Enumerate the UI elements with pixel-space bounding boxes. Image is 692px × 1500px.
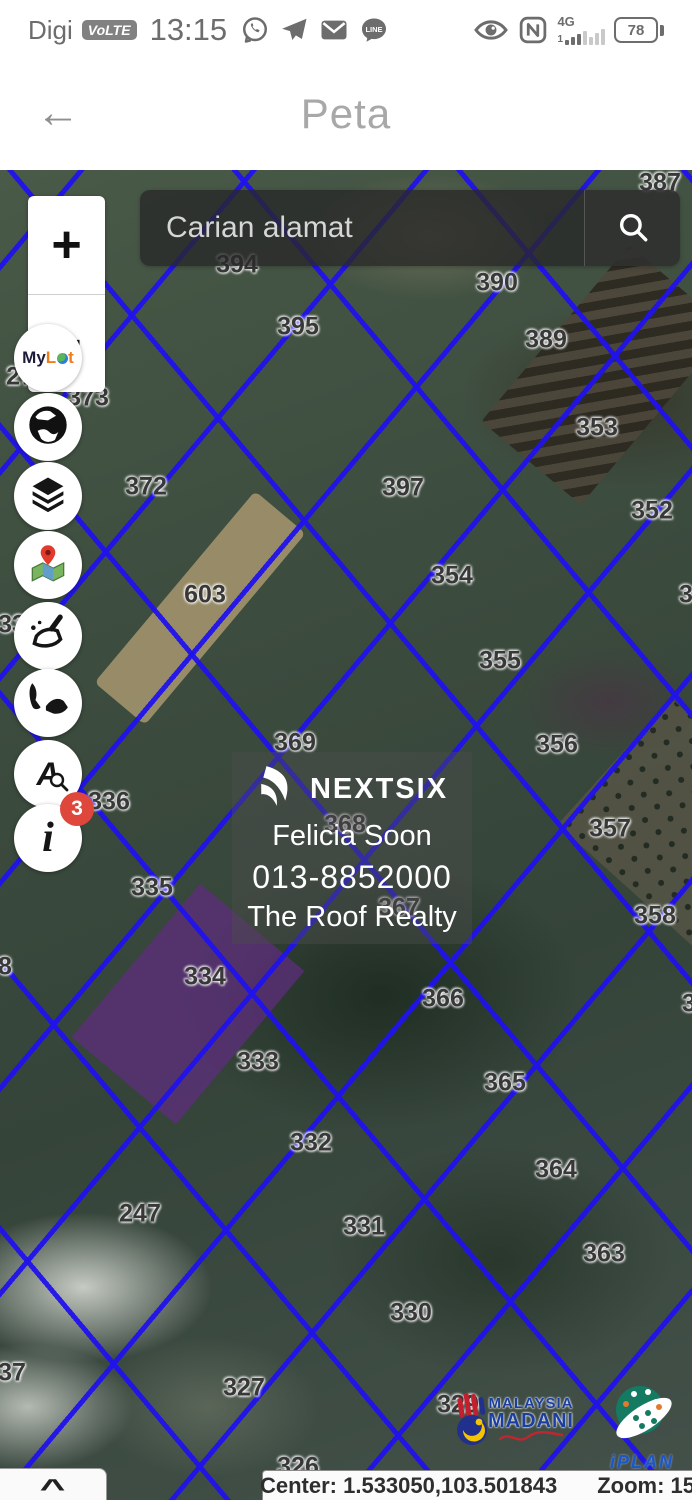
status-bar: Digi VoLTE 13:15 LINE 4G xyxy=(0,0,692,60)
center-coordinates: Center: 1.533050,103.501843 xyxy=(260,1473,557,1499)
nextsix-logo-icon xyxy=(256,764,302,815)
lot-label: 395 xyxy=(277,313,319,342)
layers-button[interactable] xyxy=(14,462,82,530)
carrier-label: Digi xyxy=(28,15,73,46)
lot-label: 331 xyxy=(343,1213,385,1242)
lot-label: 327 xyxy=(223,1374,265,1403)
zoom-in-button[interactable]: + xyxy=(28,196,105,295)
brand-row: NEXTSIX xyxy=(256,764,448,815)
madani-text: MALAYSIA MADANI xyxy=(488,1396,574,1447)
battery-icon: 78 xyxy=(614,17,664,43)
mail-icon xyxy=(318,15,350,45)
lot-label: 3 xyxy=(679,581,692,610)
agent-phone: 013-8852000 xyxy=(252,859,452,896)
lot-label: 8 xyxy=(0,953,12,982)
volte-badge: VoLTE xyxy=(82,20,137,40)
malaysia-extent-button[interactable] xyxy=(14,669,82,737)
iplan-emblem-icon xyxy=(596,1380,688,1452)
lot-label: 364 xyxy=(535,1156,577,1185)
agent-name: Felicia Soon xyxy=(272,820,432,853)
lot-label: 365 xyxy=(484,1069,526,1098)
lot-label: 335 xyxy=(131,874,173,903)
basemap-globe-button[interactable] xyxy=(14,393,82,461)
lot-label: 333 xyxy=(237,1048,279,1077)
malaysia-map-icon xyxy=(25,678,71,729)
zoom-level: Zoom: 15 xyxy=(597,1473,692,1499)
line-icon: LINE xyxy=(359,15,389,45)
madani-logo: MALAYSIA MADANI xyxy=(448,1388,598,1454)
search-input[interactable] xyxy=(140,190,584,266)
chevron-up-icon: ^ xyxy=(40,1473,66,1500)
notification-badge: 3 xyxy=(60,792,94,826)
lot-label: 357 xyxy=(589,815,631,844)
mylot-button[interactable]: MyLt xyxy=(14,324,82,392)
search-bar xyxy=(140,190,680,266)
status-left: Digi VoLTE 13:15 LINE xyxy=(28,12,389,48)
search-icon xyxy=(616,210,650,247)
globe-icon xyxy=(25,402,71,453)
lot-label: 356 xyxy=(536,731,578,760)
agent-watermark: NEXTSIX Felicia Soon 013-8852000 The Roo… xyxy=(232,752,472,944)
lot-label: 37 xyxy=(0,1359,26,1388)
lot-label: 603 xyxy=(184,581,226,610)
info-icon: i xyxy=(42,817,54,859)
title-bar: ← Peta xyxy=(0,60,692,170)
nfc-icon xyxy=(518,15,548,45)
lot-label: 390 xyxy=(476,269,518,298)
layers-icon xyxy=(26,472,70,521)
telegram-icon xyxy=(279,15,309,45)
lot-label: 354 xyxy=(431,562,473,591)
page-title: Peta xyxy=(0,90,692,138)
mylot-globe-icon xyxy=(57,353,68,364)
mylot-logo: MyLt xyxy=(22,348,74,368)
app-screen: Digi VoLTE 13:15 LINE 4G xyxy=(0,0,692,1500)
eye-icon xyxy=(473,15,509,45)
search-button[interactable] xyxy=(584,190,680,266)
lot-label: 247 xyxy=(119,1200,161,1229)
brand-name: NEXTSIX xyxy=(310,773,448,806)
lot-label: 3 xyxy=(682,990,692,1019)
lot-label: 372 xyxy=(125,473,167,502)
lot-label: 334 xyxy=(184,963,226,992)
coordinate-bar: Center: 1.533050,103.501843 Zoom: 15 xyxy=(262,1470,692,1500)
signal-icon: 4G 1 xyxy=(557,15,605,45)
lot-label: 332 xyxy=(290,1129,332,1158)
status-time: 13:15 xyxy=(150,12,228,48)
lot-label: 336 xyxy=(88,788,130,817)
whatsapp-icon xyxy=(240,15,270,45)
iplan-logo: iPLAN xyxy=(596,1380,692,1470)
lot-label: 363 xyxy=(583,1240,625,1269)
location-map-button[interactable] xyxy=(14,531,82,599)
svg-text:LINE: LINE xyxy=(366,25,383,34)
lot-label: 358 xyxy=(634,902,676,931)
lot-label: 397 xyxy=(382,474,424,503)
lot-label: 330 xyxy=(390,1299,432,1328)
map-pin-icon xyxy=(25,540,71,591)
lot-label: 366 xyxy=(422,985,464,1014)
broom-icon xyxy=(25,611,71,662)
collapse-button[interactable]: ^ xyxy=(0,1468,107,1500)
battery-percent: 78 xyxy=(628,22,645,39)
lot-label: 352 xyxy=(631,497,673,526)
lot-label: 353 xyxy=(576,414,618,443)
status-right: 4G 1 78 xyxy=(473,15,664,45)
lot-label: 389 xyxy=(525,326,567,355)
agency-name: The Roof Realty xyxy=(247,901,457,934)
map-canvas[interactable]: 3873943903953892703733533723973523546033… xyxy=(0,170,692,1500)
clear-map-button[interactable] xyxy=(14,602,82,670)
lot-label: 355 xyxy=(479,647,521,676)
